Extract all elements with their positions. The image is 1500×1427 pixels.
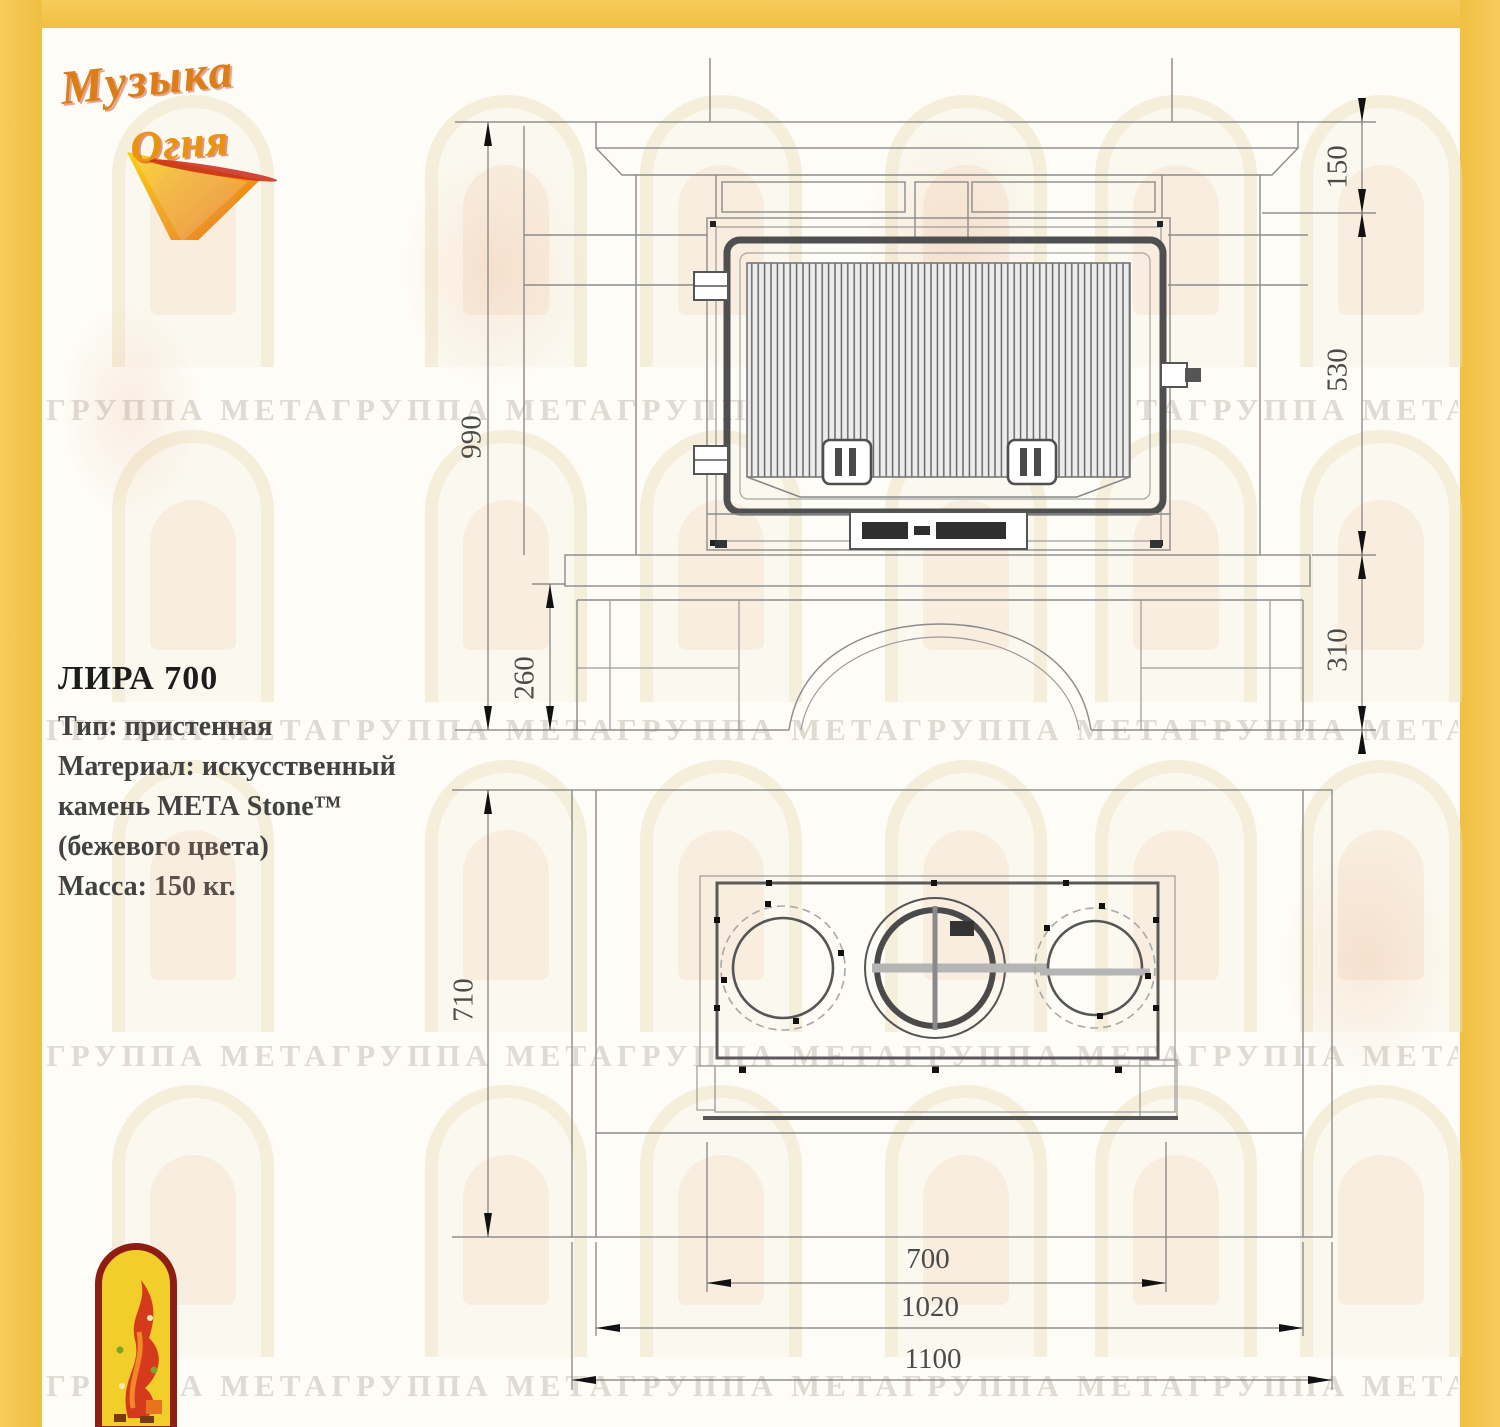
flame-figure-icon (102, 1258, 172, 1427)
top-view-dimensions: 710 700 1020 1100 (448, 790, 1332, 1390)
top-view (572, 790, 1332, 1237)
door-hinge-icon (694, 272, 728, 474)
dim-depth: 710 (448, 978, 480, 1022)
dim-firebox-height: 530 (1322, 348, 1354, 392)
dim-firebox-width: 700 (906, 1243, 950, 1275)
dim-base-left: 260 (509, 656, 541, 700)
corner-arch-logo (95, 1243, 177, 1427)
front-view (524, 58, 1310, 730)
technical-drawing: 990 260 150 530 310 (0, 0, 1500, 1427)
dim-overall-height: 990 (456, 415, 488, 459)
door-handle-icon (1161, 363, 1201, 387)
dim-base-right: 310 (1322, 628, 1354, 672)
dim-body-width: 1020 (901, 1291, 959, 1323)
spec-sheet-page: ГРУППА МЕТАГРУППА МЕТАГРУППА МЕТАГРУППА … (0, 0, 1500, 1427)
dim-overall-width: 1100 (905, 1343, 962, 1375)
dim-top-section: 150 (1322, 145, 1354, 189)
